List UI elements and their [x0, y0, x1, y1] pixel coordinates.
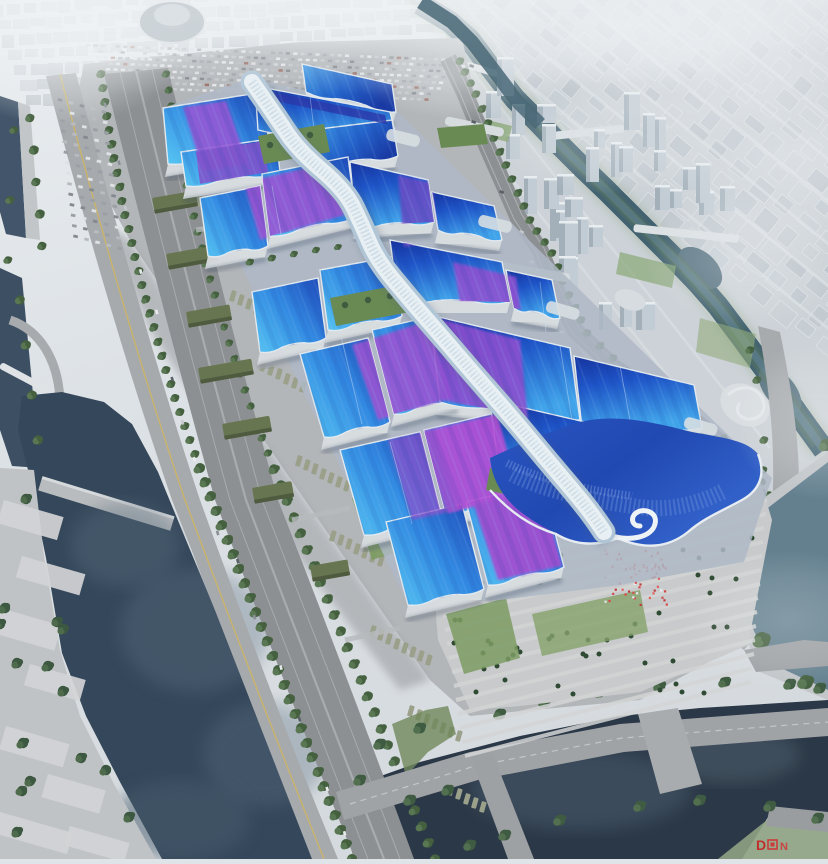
svg-text:N: N	[780, 841, 788, 853]
svg-text:D: D	[756, 837, 766, 853]
